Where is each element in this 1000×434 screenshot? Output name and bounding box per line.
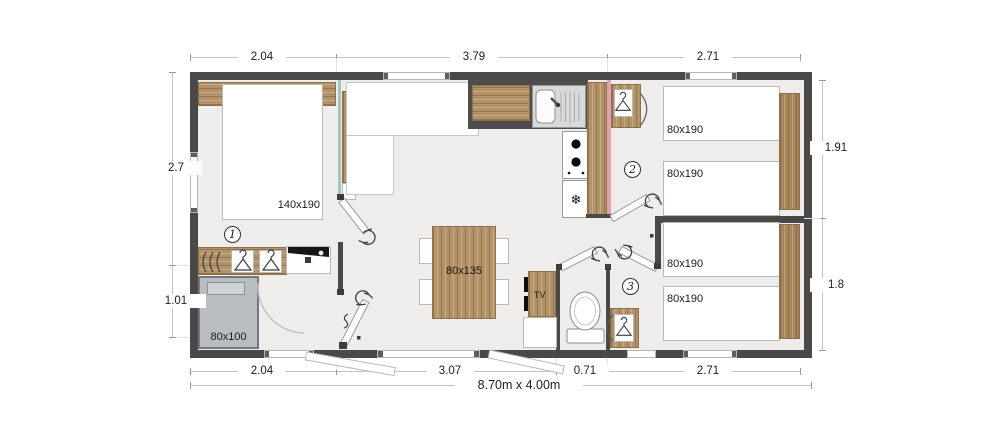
floor-plan: 140x190 1 80x100 80x135 80x190 80x190 2 … <box>0 0 1000 434</box>
hanger-icon <box>235 250 251 270</box>
toilet-icon <box>567 292 604 343</box>
stove-burners-icon <box>568 139 585 174</box>
plan-annotations: ❄ <box>0 0 1000 434</box>
washbasin-icon <box>288 247 329 263</box>
hanger-icon <box>263 250 279 270</box>
door-bedroom3 <box>615 242 659 271</box>
wardrobe-door-arc <box>607 315 613 341</box>
shower-door-arc <box>258 283 304 333</box>
entrance-casement-icon <box>305 350 564 375</box>
door-bathroom <box>340 288 373 347</box>
snowflake-icon: ❄ <box>571 192 582 207</box>
hanger-icon <box>617 317 631 335</box>
clothes-rail-icon <box>203 252 220 272</box>
door-bedroom1 <box>339 198 379 248</box>
sink-icon <box>536 90 579 123</box>
wardrobe-door-arc <box>640 93 647 125</box>
door-bedroom2 <box>610 192 662 221</box>
door-wc <box>559 245 609 270</box>
hanger-icon <box>616 92 630 110</box>
